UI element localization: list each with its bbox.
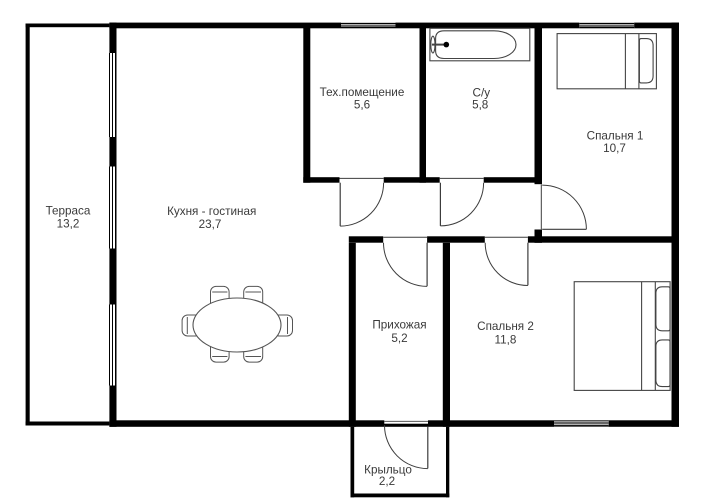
svg-text:Спальня 1: Спальня 1 bbox=[587, 129, 644, 142]
svg-text:2,2: 2,2 bbox=[379, 475, 395, 488]
svg-text:23,7: 23,7 bbox=[199, 218, 222, 231]
svg-text:5,2: 5,2 bbox=[391, 332, 407, 345]
svg-text:Тех.помещение: Тех.помещение bbox=[320, 86, 405, 99]
svg-text:С/у: С/у bbox=[473, 86, 491, 99]
svg-text:13,2: 13,2 bbox=[57, 218, 80, 231]
svg-text:11,8: 11,8 bbox=[495, 333, 517, 346]
svg-text:Терраса: Терраса bbox=[46, 205, 91, 218]
svg-text:5,8: 5,8 bbox=[472, 99, 488, 112]
svg-text:10,7: 10,7 bbox=[603, 142, 626, 155]
svg-text:Кухня - гостиная: Кухня - гостиная bbox=[167, 205, 256, 218]
svg-text:5,6: 5,6 bbox=[354, 99, 370, 112]
svg-text:Прихожая: Прихожая bbox=[372, 319, 426, 332]
svg-text:Спальня 2: Спальня 2 bbox=[477, 320, 534, 333]
